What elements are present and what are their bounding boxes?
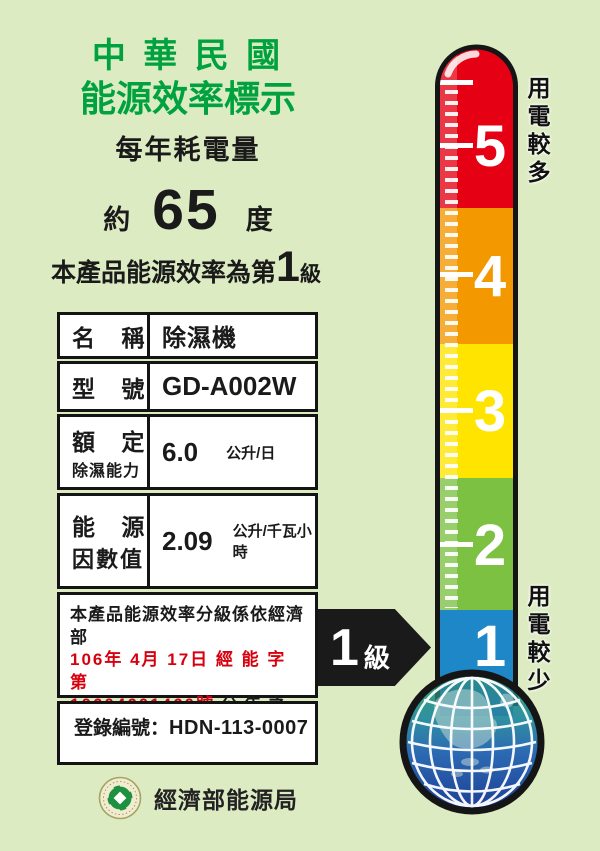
- spec-row-capacity-value-cell: 6.0 公升/日: [150, 417, 315, 487]
- annual-consumption-row: 約 65 度: [57, 182, 319, 239]
- spec-row-energy-factor-unit: 公升/千瓦小時: [233, 520, 315, 562]
- spec-row-model-label: 型 號: [72, 370, 135, 404]
- footer: 經濟部能源局: [98, 775, 358, 821]
- level-3-number: 3: [474, 379, 506, 444]
- spec-row-model-value: GD-A002W: [162, 371, 296, 402]
- caption-more-power: 用電較多: [520, 76, 554, 188]
- spec-row-energy-factor-label-cell: 能 源 因數值: [60, 496, 150, 586]
- spec-row-energy-factor-label2: 因數值: [72, 542, 135, 574]
- legal-note-line2: 106年 4月 17日 經 能 字 第: [70, 649, 307, 694]
- spec-row-capacity-unit: 公升/日: [226, 442, 275, 463]
- legal-note-box: 本產品能源效率分級係依經濟部 106年 4月 17日 經 能 字 第 10604…: [57, 592, 318, 698]
- agency-name: 經濟部能源局: [154, 781, 298, 815]
- consumption-approx-label: 約: [103, 198, 130, 237]
- registration-number: HDN-113-0007: [169, 717, 308, 739]
- spec-row-capacity: 額 定 除濕能力 6.0 公升/日: [57, 414, 318, 490]
- energy-efficiency-label: 中 華 民 國 能源效率標示 每年耗電量 約 65 度 本產品能源效率為第 1 …: [0, 0, 600, 851]
- spec-row-model-value-cell: GD-A002W: [150, 364, 315, 409]
- registration-label: 登錄編號：: [74, 718, 169, 739]
- annual-consumption-heading: 每年耗電量: [57, 128, 319, 167]
- label-title-line2: 能源效率標示: [57, 70, 319, 122]
- grade-arrow-suffix: 級: [364, 638, 390, 675]
- spec-row-capacity-label2: 除濕能力: [72, 457, 135, 481]
- spec-row-capacity-label-cell: 額 定 除濕能力: [60, 417, 150, 487]
- grade-arrow-number: 1: [330, 622, 359, 674]
- grade-statement-prefix: 本產品能源效率為第: [51, 253, 276, 289]
- spec-row-energy-factor-value: 2.09: [162, 526, 213, 557]
- thermometer-minor-ticks: [445, 90, 458, 608]
- spec-row-capacity-label1: 額 定: [72, 423, 135, 457]
- spec-row-capacity-value: 6.0: [162, 437, 198, 468]
- caption-less-power: 用電較少: [520, 584, 554, 696]
- efficiency-thermometer: 5 4 3 2 1: [320, 0, 600, 851]
- consumption-value: 65: [152, 182, 219, 239]
- legal-note-line1: 本產品能源效率分級係依經濟部: [70, 604, 307, 649]
- agency-seal-icon: [98, 776, 142, 820]
- consumption-unit: 度: [246, 198, 273, 237]
- spec-row-energy-factor: 能 源 因數值 2.09 公升/千瓦小時: [57, 493, 318, 589]
- level-4-number: 4: [474, 244, 506, 309]
- registration-box: 登錄編號：HDN-113-0007: [57, 701, 318, 765]
- spec-row-name-value-cell: 除濕機: [150, 315, 315, 356]
- grade-statement-suffix: 級: [300, 258, 321, 288]
- spec-row-name-label-cell: 名 稱: [60, 315, 150, 356]
- spec-row-model: 型 號 GD-A002W: [57, 361, 318, 412]
- spec-row-name-label: 名 稱: [72, 319, 135, 353]
- grade-statement-value: 1: [276, 246, 300, 289]
- level-5-number: 5: [474, 114, 506, 179]
- spec-row-energy-factor-value-cell: 2.09 公升/千瓦小時: [150, 496, 315, 586]
- spec-row-name: 名 稱 除濕機: [57, 312, 318, 359]
- spec-row-energy-factor-label1: 能 源: [72, 508, 135, 542]
- level-2-number: 2: [474, 513, 506, 578]
- grade-statement: 本產品能源效率為第 1 級: [36, 246, 336, 289]
- level-1-number: 1: [474, 614, 506, 679]
- spec-row-model-label-cell: 型 號: [60, 364, 150, 409]
- spec-row-name-value: 除濕機: [162, 318, 237, 353]
